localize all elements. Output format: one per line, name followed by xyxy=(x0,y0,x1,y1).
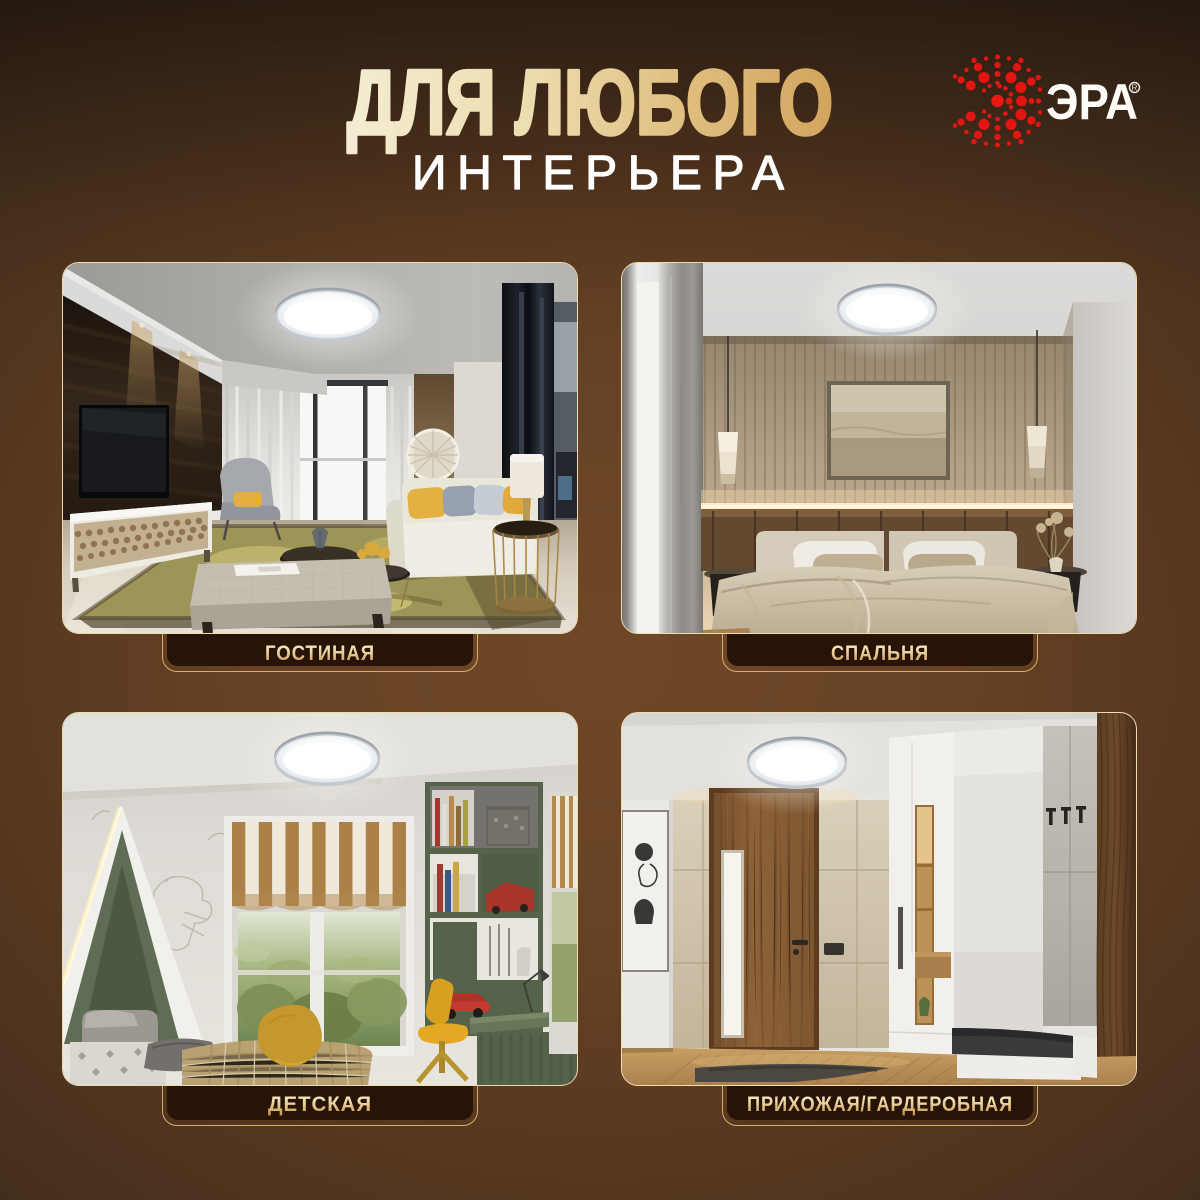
svg-text:ПРИХОЖАЯ/ГАРДЕРОБНАЯ: ПРИХОЖАЯ/ГАРДЕРОБНАЯ xyxy=(747,1093,1013,1116)
svg-text:СПАЛЬНЯ: СПАЛЬНЯ xyxy=(831,642,929,665)
svg-text:R: R xyxy=(1132,84,1138,93)
svg-text:ДЕТСКАЯ: ДЕТСКАЯ xyxy=(268,1093,372,1116)
svg-text:ИНТЕРЬЕРА: ИНТЕРЬЕРА xyxy=(412,147,784,200)
svg-text:ЭРА: ЭРА xyxy=(1046,74,1138,130)
svg-text:ДЛЯ ЛЮБОГО: ДЛЯ ЛЮБОГО xyxy=(347,52,833,154)
svg-text:ГОСТИНАЯ: ГОСТИНАЯ xyxy=(265,642,375,665)
